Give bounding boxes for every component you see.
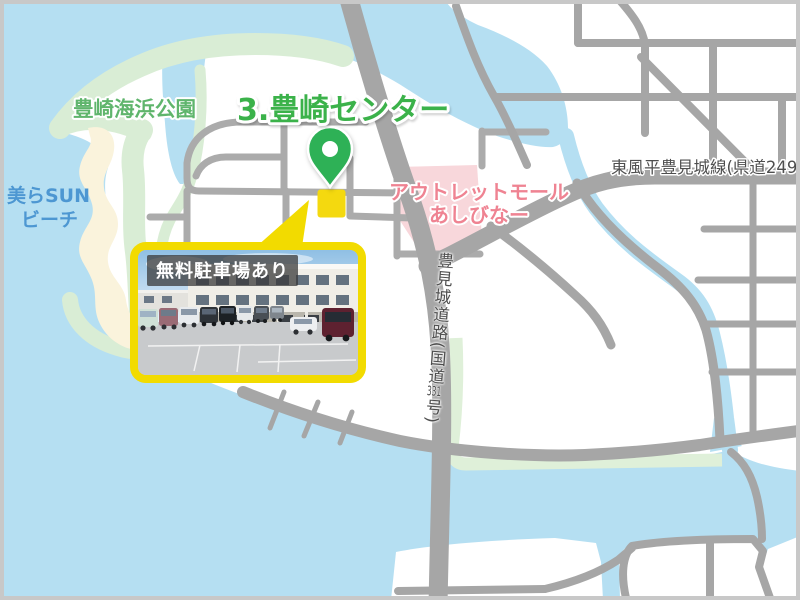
photo-caption: 無料駐車場あり xyxy=(147,255,298,286)
beach-label-line1: 美らSUN xyxy=(7,184,90,207)
route331-label-suffix: 号) xyxy=(422,398,443,425)
destination-title: 3.豊崎センター xyxy=(237,93,449,128)
route331-label-number: 331 xyxy=(426,385,442,399)
parking-photo: 無料駐車場あり xyxy=(130,242,366,383)
map-canvas: 豊崎海浜公園 美らSUN ビーチ アウトレットモール あしびなー 東風平豊見城線… xyxy=(0,0,800,600)
map-flyer: 豊崎海浜公園 美らSUN ビーチ アウトレットモール あしびなー 東風平豊見城線… xyxy=(0,0,800,600)
beach-label-line2: ビーチ xyxy=(21,209,78,231)
route249-label: 東風平豊見城線(県道249号) xyxy=(611,158,800,177)
outlet-mall-label-line2: あしびなー xyxy=(429,203,529,227)
outlet-mall-label-line1: アウトレットモール xyxy=(389,180,569,204)
park-label: 豊崎海浜公園 xyxy=(73,97,196,121)
destination-building-marker xyxy=(318,190,346,218)
